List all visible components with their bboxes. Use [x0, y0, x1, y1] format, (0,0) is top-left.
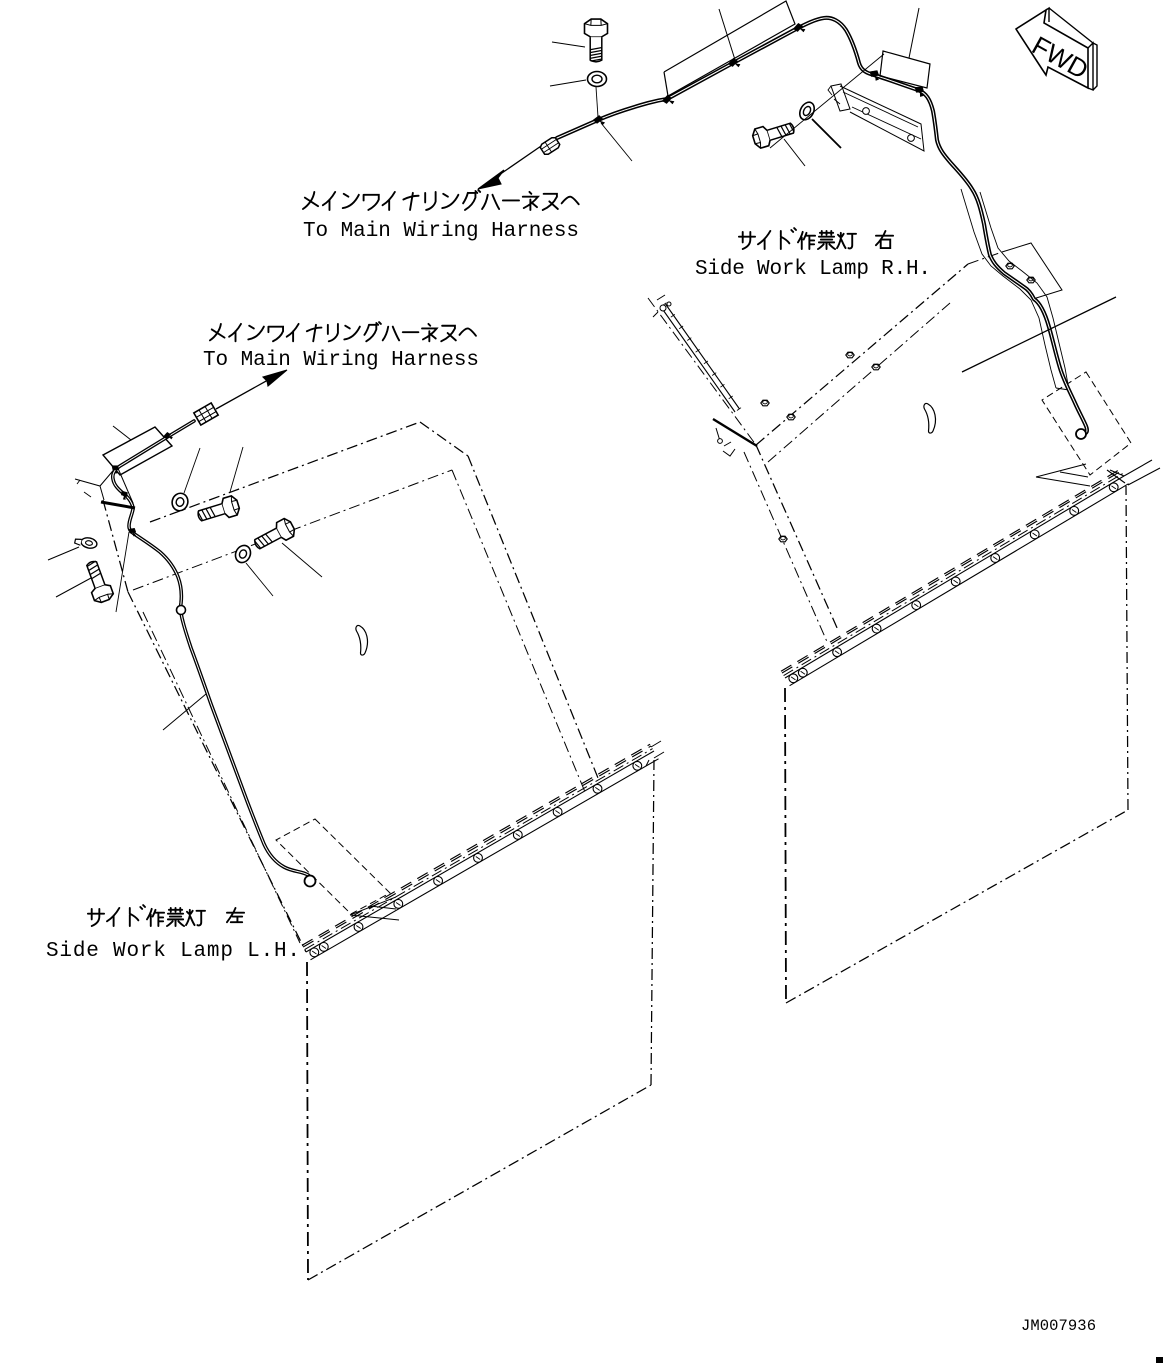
svg-text:To Main Wiring Harness: To Main Wiring Harness — [303, 220, 579, 243]
svg-text:To Main Wiring Harness: To Main Wiring Harness — [203, 349, 479, 372]
svg-text:Side Work Lamp R.H.: Side Work Lamp R.H. — [695, 258, 931, 281]
svg-text:Side Work Lamp L.H.: Side Work Lamp L.H. — [46, 940, 300, 963]
svg-text:JM007936: JM007936 — [1021, 1317, 1096, 1335]
